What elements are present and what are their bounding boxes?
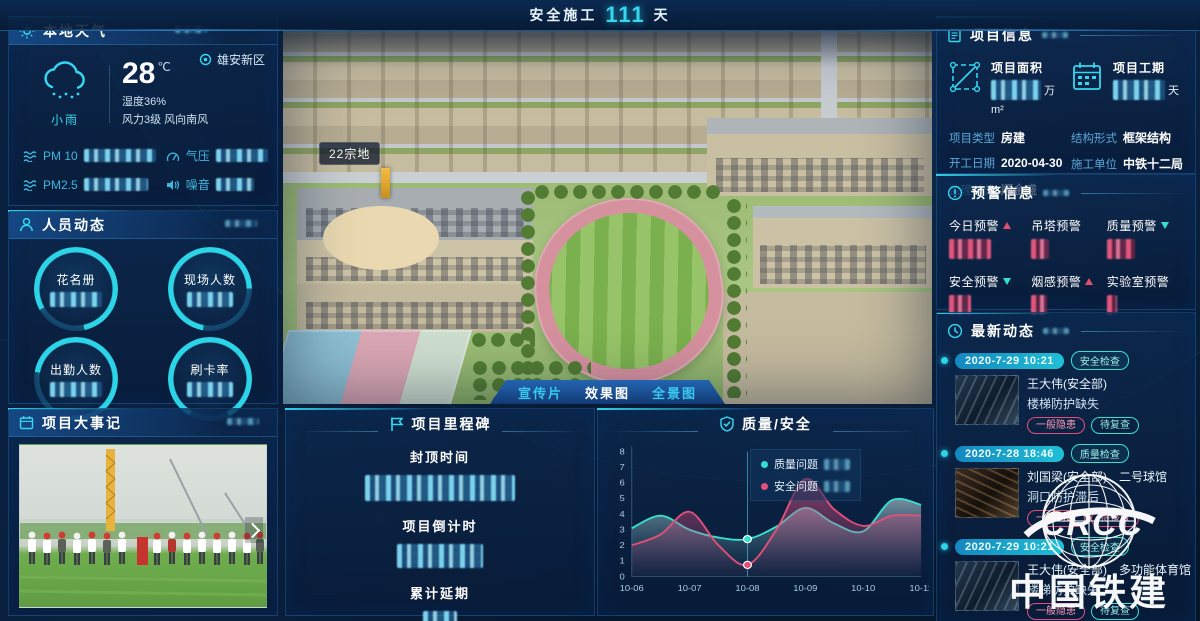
banner-label: 安全施工 <box>529 5 597 25</box>
tree-row <box>725 198 747 398</box>
dashboard-root: 22宗地 宣传片 效果图 全景图 安全施工 111 天 本地天气 雄安新区 <box>0 0 1200 621</box>
roster-value-blurred <box>50 292 102 307</box>
quality-title: 质量/安全 <box>742 414 812 434</box>
stat-area: 项目面积 万m² <box>947 59 1063 118</box>
svg-text:6: 6 <box>620 478 625 488</box>
school-building-left-wing <box>297 284 533 332</box>
temperature-unit: ℃ <box>157 60 170 74</box>
metric-pm25: PM2.5 <box>23 176 156 193</box>
duration-value-blurred <box>1113 80 1165 100</box>
warning-crane: 吊塔预警 <box>1031 217 1100 259</box>
milestone-panel: 项目里程碑 封顶时间 项目倒计时 累计延期 <box>285 408 595 616</box>
svg-text:10-11: 10-11 <box>909 583 929 593</box>
entry-type-badge: 安全检查 <box>1071 351 1129 370</box>
entry-tag-severity: 一般隐患 <box>1027 417 1085 434</box>
entry-tag-status: 待整改 <box>1091 510 1139 527</box>
event-photo: .pA{--h:#d03c34;--s:#ffffff}.pB{--h:#f2f… <box>19 444 267 608</box>
location-pin-icon <box>199 53 212 66</box>
header-decoration <box>1043 328 1069 334</box>
person-icon <box>19 217 34 232</box>
ring-onsite: 现场人数 <box>168 247 252 331</box>
school-building-right-2 <box>753 206 932 288</box>
quality-safety-panel: 质量/安全 01234567810-0610-0710-0810-0910-10… <box>597 408 934 616</box>
quality-warning-value-blurred <box>1107 239 1135 259</box>
quality-series-dot <box>761 461 768 468</box>
weather-condition: 小雨 <box>23 111 107 128</box>
news-title: 最新动态 <box>971 321 1035 341</box>
svg-text:7: 7 <box>620 462 625 472</box>
milestone-items: 封顶时间 项目倒计时 累计延期 <box>286 447 594 621</box>
news-entry[interactable]: 2020-7-28 18:46 质量检查 刘国梁(安全部)二号球馆 洞口防护滞后… <box>937 440 1195 533</box>
milestone-title: 项目里程碑 <box>412 414 492 434</box>
entry-thumbnail <box>955 561 1019 611</box>
entry-type-badge: 质量检查 <box>1071 444 1129 463</box>
land-parcel-label: 22宗地 <box>319 142 380 165</box>
clock-icon <box>947 323 963 339</box>
warning-today: 今日预警 <box>949 217 1025 259</box>
entry-issue: 洞口防护滞后 <box>1027 488 1167 505</box>
news-entry[interactable]: 2020-7-29 10:21 安全检查 王大伟(安全部)多功能体育馆 楼梯防护… <box>937 533 1195 621</box>
entry-issue: 楼梯防护缺失 <box>1027 395 1139 412</box>
attendance-value-blurred <box>50 382 102 397</box>
wind-text: 风力3级 风向南风 <box>122 111 208 129</box>
trend-down-icon <box>1161 222 1169 229</box>
events-panel: 项目大事记 .pA{--h:#d03c34;--s:#ffffff}.pB{--… <box>8 408 278 616</box>
svg-text:10-10: 10-10 <box>851 583 875 593</box>
entry-location: 多功能体育馆 <box>1119 561 1191 578</box>
ring-roster: 花名册 <box>34 247 118 331</box>
svg-text:10-07: 10-07 <box>678 583 702 593</box>
events-header: 项目大事记 <box>9 409 277 437</box>
air-metrics: PM 10 气压 PM2.5 噪音 <box>23 147 263 193</box>
legend-safety: 安全问题 <box>761 478 850 494</box>
entry-date: 2020-7-28 18:46 <box>955 446 1064 462</box>
entry-person: 王大伟(安全部) <box>1027 561 1107 578</box>
safety-series-dot <box>761 483 768 490</box>
timeline-dot <box>941 450 948 457</box>
pm25-value-blurred <box>84 178 148 191</box>
legend-quality: 质量问题 <box>761 456 850 472</box>
stat-duration: 项目工期 天 <box>1069 59 1185 118</box>
area-survey-icon <box>947 59 983 95</box>
news-header: 最新动态 <box>937 313 1195 347</box>
warnings-panel: 预警信息 今日预警 吊塔预警 质量预警 安全预警 烟感预警 <box>936 174 1196 310</box>
entry-date: 2020-7-29 10:21 <box>955 539 1064 555</box>
events-title: 项目大事记 <box>42 413 122 433</box>
personnel-header: 人员动态 <box>9 211 277 239</box>
svg-text:1: 1 <box>620 556 625 566</box>
svg-text:0: 0 <box>620 572 625 582</box>
delay-blurred <box>423 611 457 621</box>
weather-panel: 本地天气 雄安新区 小雨 28℃ 湿度36% 风力3级 风向南 <box>8 16 278 206</box>
pm10-value-blurred <box>84 149 156 162</box>
location-chip: 雄安新区 <box>199 51 265 68</box>
view-switcher: 宣传片 效果图 全景图 <box>490 380 725 404</box>
metric-noise: 噪音 <box>166 176 268 193</box>
calendar-icon <box>19 415 34 430</box>
view-button-promo[interactable]: 宣传片 <box>518 383 563 402</box>
personnel-title: 人员动态 <box>42 215 106 235</box>
header-decoration <box>225 220 257 227</box>
speaker-icon <box>166 179 180 191</box>
header-line <box>1081 193 1185 194</box>
air-waves-icon <box>23 150 37 162</box>
project-info-panel: 项目信息 项目面积 万m² <box>936 16 1196 174</box>
timeline-dot <box>941 543 948 550</box>
header-decoration <box>227 418 259 425</box>
campus-3d-view: 22宗地 宣传片 效果图 全景图 <box>283 30 932 404</box>
quality-value-blurred <box>824 459 850 470</box>
entry-thumbnail <box>955 375 1019 425</box>
header-line <box>1080 35 1185 36</box>
header-decoration <box>1042 32 1068 38</box>
svg-text:4: 4 <box>620 509 625 519</box>
quality-header: 质量/安全 <box>598 409 933 439</box>
humidity-text: 湿度36% <box>122 93 208 111</box>
flag-icon <box>389 416 405 432</box>
track-infield <box>539 202 719 381</box>
svg-text:10-06: 10-06 <box>620 583 644 593</box>
temperature-value: 28 <box>122 57 155 90</box>
news-entry[interactable]: 2020-7-29 10:21 安全检查 王大伟(安全部) 楼梯防护缺失 一般隐… <box>937 347 1195 440</box>
warnings-title: 预警信息 <box>971 183 1035 203</box>
svg-text:3: 3 <box>620 525 625 535</box>
news-panel: 最新动态 2020-7-29 10:21 安全检查 王大伟(安全部) 楼梯防护缺… <box>936 312 1196 621</box>
entry-person: 刘国梁(安全部) <box>1027 468 1107 485</box>
topping-date-blurred <box>365 475 515 501</box>
school-building-right-1 <box>707 118 932 196</box>
entry-tag-severity: 一般问题 <box>1027 510 1085 527</box>
shield-check-icon <box>719 416 735 432</box>
view-button-panorama[interactable]: 全景图 <box>652 383 697 402</box>
onsite-value-blurred <box>187 292 233 307</box>
entry-tag-status: 待复查 <box>1091 417 1139 434</box>
entry-person: 王大伟(安全部) <box>1027 375 1107 392</box>
location-label: 雄安新区 <box>217 51 265 68</box>
entry-date: 2020-7-29 10:21 <box>955 353 1064 369</box>
view-button-render[interactable]: 效果图 <box>585 383 630 402</box>
banner-days-value: 111 <box>605 4 645 26</box>
svg-text:10-09: 10-09 <box>793 583 817 593</box>
entry-location: 二号球馆 <box>1119 468 1167 485</box>
timeline-dot <box>941 357 948 364</box>
school-building-right-3 <box>723 292 932 404</box>
today-warning-value-blurred <box>949 239 991 259</box>
personnel-panel: 人员动态 花名册 现场人数 出勤人数 刷卡率 <box>8 210 278 404</box>
svg-text:10-08: 10-08 <box>735 583 759 593</box>
calendar-icon <box>1069 59 1105 95</box>
personnel-rings: 花名册 现场人数 出勤人数 刷卡率 <box>9 247 277 421</box>
warnings-grid: 今日预警 吊塔预警 质量预警 安全预警 烟感预警 实验室预警 <box>937 209 1195 315</box>
svg-text:8: 8 <box>620 447 625 457</box>
trend-up-icon <box>1085 278 1093 285</box>
banner-unit: 天 <box>654 5 671 25</box>
divider <box>109 65 110 123</box>
tree-row <box>533 184 723 202</box>
entry-tag-status: 待复查 <box>1091 603 1139 620</box>
sand-courtyard <box>323 206 439 270</box>
warning-quality: 质量预警 <box>1107 217 1183 259</box>
air-waves-icon <box>23 179 37 191</box>
gauge-icon <box>166 150 180 162</box>
cloud-rain-icon <box>38 61 92 103</box>
project-stats: 项目面积 万m² 项目工期 天 <box>937 51 1195 120</box>
warnings-header: 预警信息 <box>937 175 1195 209</box>
safety-value-blurred <box>824 481 850 492</box>
milestone-header: 项目里程碑 <box>286 409 594 439</box>
safety-days-banner: 安全施工 111 天 <box>0 0 1200 31</box>
swipe-rate-value-blurred <box>187 382 233 397</box>
trend-up-icon <box>1003 222 1011 229</box>
area-value-blurred <box>991 80 1041 100</box>
svg-text:5: 5 <box>620 494 625 504</box>
photo-next-button[interactable] <box>245 517 263 543</box>
entry-tag-severity: 一般隐患 <box>1027 603 1085 620</box>
map-pin-icon <box>381 168 390 198</box>
entry-type-badge: 安全检查 <box>1071 537 1129 556</box>
warning-safety: 安全预警 <box>949 273 1025 315</box>
metric-pressure: 气压 <box>166 147 268 164</box>
entry-thumbnail <box>955 468 1019 518</box>
header-decoration <box>1043 190 1069 196</box>
alarm-icon <box>947 185 963 201</box>
warning-smoke: 烟感预警 <box>1031 273 1100 315</box>
crane-warning-value-blurred <box>1031 239 1049 259</box>
header-line <box>1081 331 1185 332</box>
entry-issue: 楼梯防护缺失 <box>1027 581 1187 598</box>
group-photo-illustration: .pA{--h:#d03c34;--s:#ffffff}.pB{--h:#f2f… <box>20 445 266 607</box>
chevron-right-icon <box>245 522 261 538</box>
noise-value-blurred <box>216 178 254 191</box>
warning-lab: 实验室预警 <box>1107 273 1183 315</box>
trend-down-icon <box>1003 278 1011 285</box>
svg-text:2: 2 <box>620 540 625 550</box>
pressure-value-blurred <box>216 149 268 162</box>
chart-tooltip-legend: 质量问题 安全问题 <box>750 449 861 501</box>
metric-pm10: PM 10 <box>23 147 156 164</box>
sports-courts <box>283 330 472 404</box>
countdown-blurred <box>397 544 483 568</box>
